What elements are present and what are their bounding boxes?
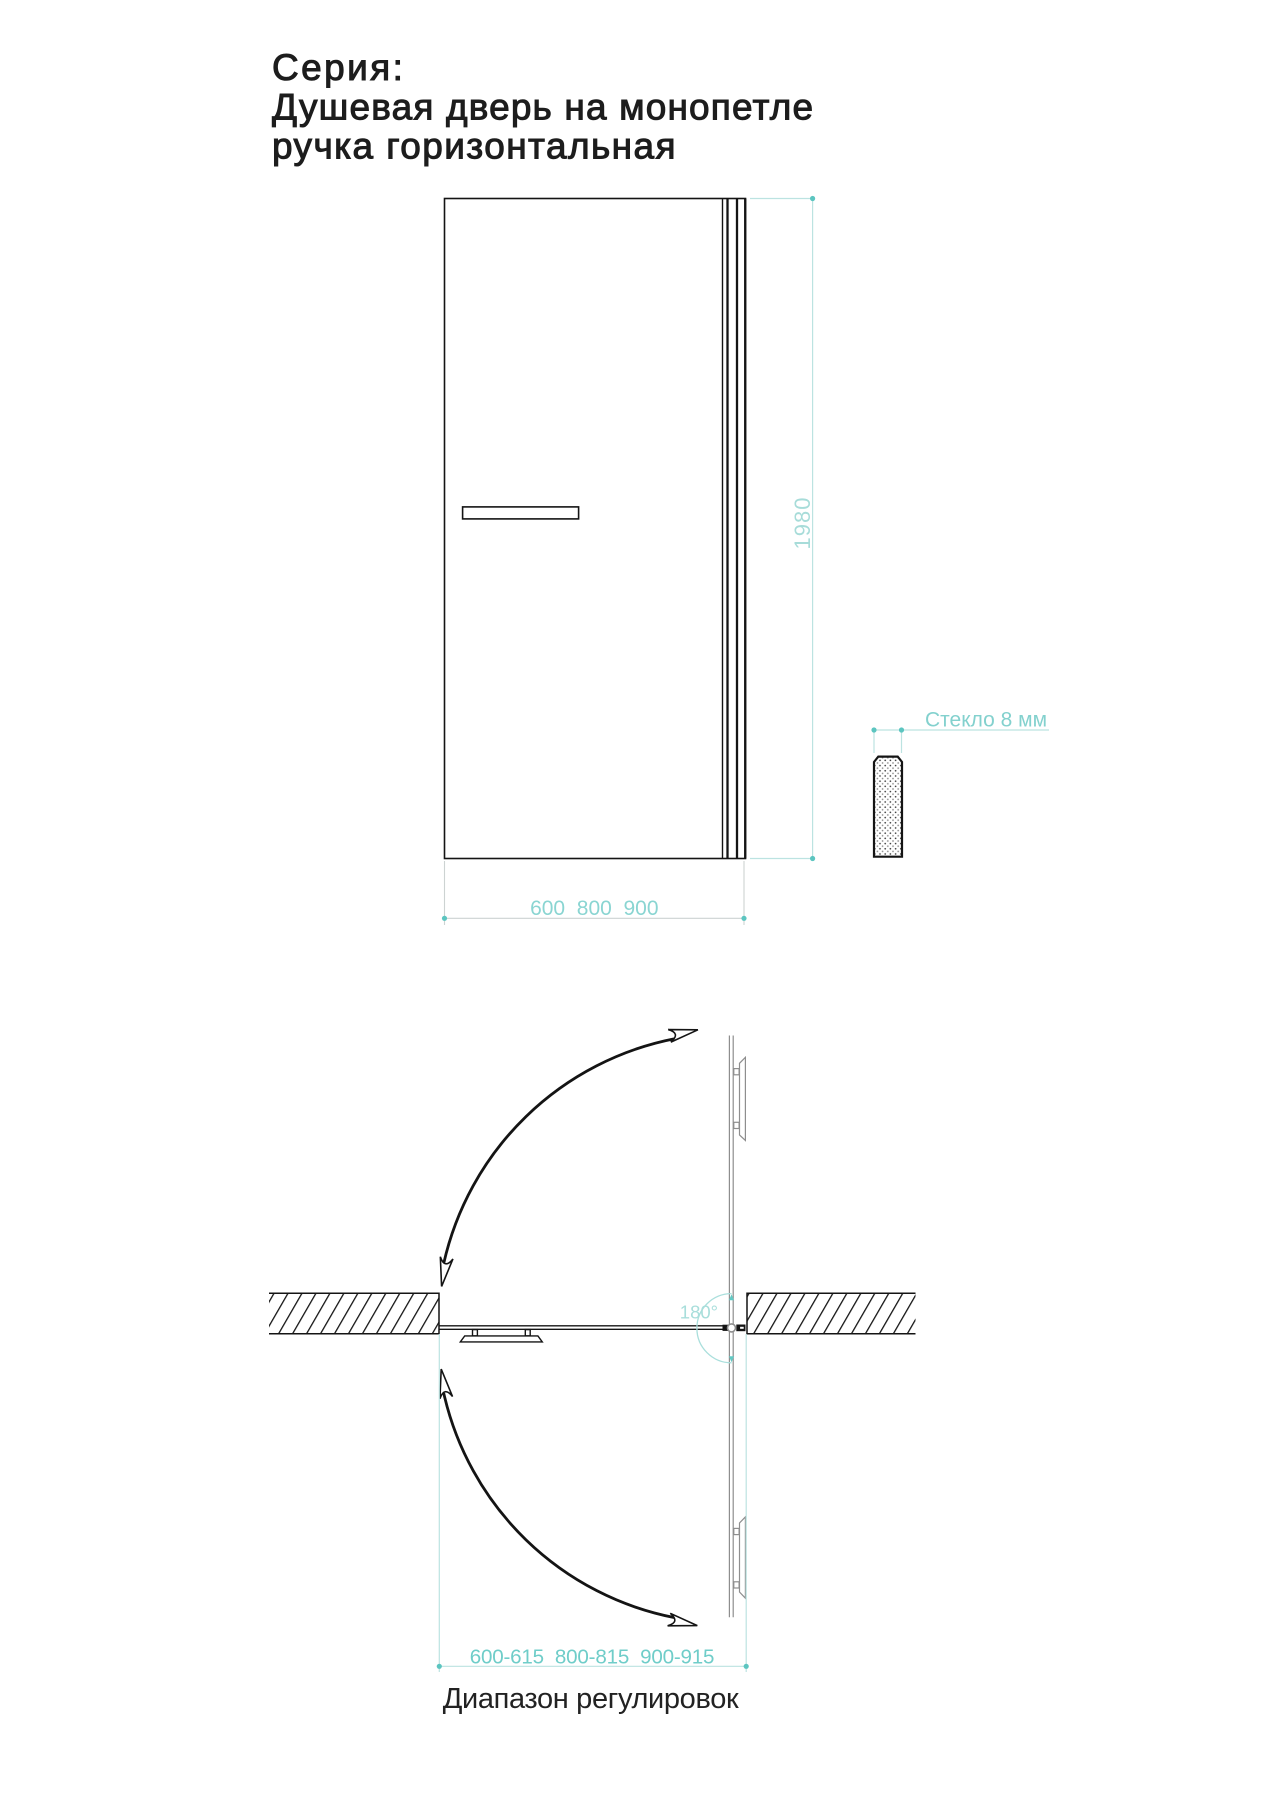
- svg-text:Серия:: Серия:: [272, 47, 405, 88]
- svg-text:600 800 900: 600 800 900: [530, 897, 658, 920]
- svg-text:Диапазон регулировок: Диапазон регулировок: [443, 1683, 739, 1715]
- svg-text:ручка горизонтальная: ручка горизонтальная: [272, 126, 677, 167]
- svg-text:180°: 180°: [680, 1301, 718, 1322]
- svg-text:Стекло 8 мм: Стекло 8 мм: [925, 709, 1047, 732]
- svg-text:1980: 1980: [790, 497, 815, 550]
- svg-text:600-615 800-815 900-915: 600-615 800-815 900-915: [470, 1646, 715, 1669]
- svg-text:Душевая дверь на монопетле: Душевая дверь на монопетле: [272, 87, 814, 128]
